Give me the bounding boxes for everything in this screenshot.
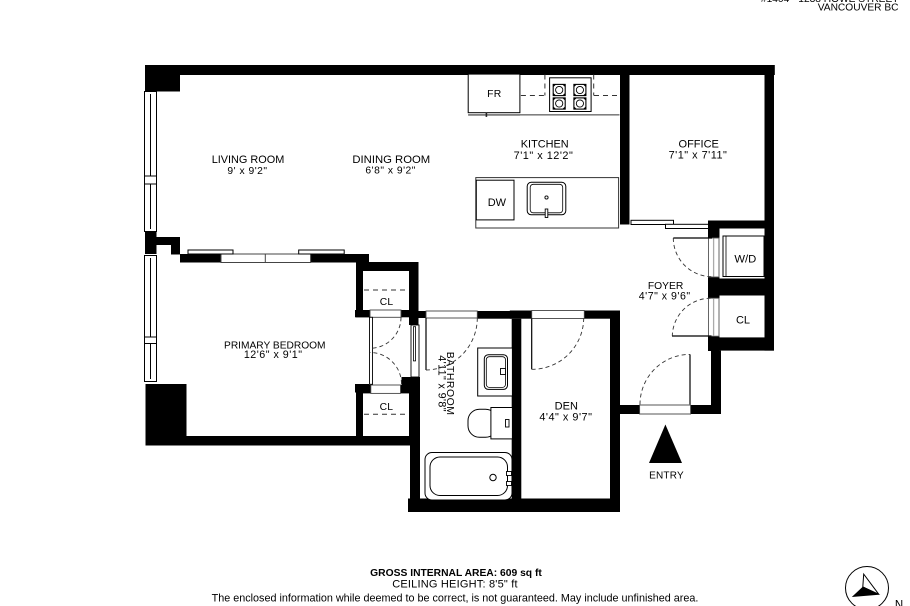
svg-text:9' x 9'2": 9' x 9'2"	[227, 166, 267, 177]
svg-text:7'1" x 7'11": 7'1" x 7'11"	[669, 150, 728, 162]
svg-text:CL: CL	[380, 297, 394, 308]
svg-text:CL: CL	[380, 402, 394, 413]
svg-text:N: N	[895, 600, 903, 606]
svg-text:LIVING ROOM: LIVING ROOM	[212, 154, 285, 166]
svg-text:FR: FR	[487, 89, 502, 100]
svg-text:DW: DW	[488, 197, 507, 209]
svg-text:CL: CL	[736, 314, 750, 326]
svg-text:4'11" x 9'8": 4'11" x 9'8"	[436, 355, 448, 412]
svg-text:DINING ROOM: DINING ROOM	[352, 154, 430, 166]
svg-text:4'7" x 9'6": 4'7" x 9'6"	[639, 290, 691, 302]
svg-text:6'8" x 9'2": 6'8" x 9'2"	[365, 166, 416, 177]
svg-text:KITCHEN: KITCHEN	[521, 139, 569, 151]
svg-text:4'4" x 9'7": 4'4" x 9'7"	[539, 412, 592, 424]
svg-text:12'6" x 9'1": 12'6" x 9'1"	[244, 349, 303, 361]
svg-text:VANCOUVER BC: VANCOUVER BC	[818, 2, 899, 13]
svg-text:The enclosed information while: The enclosed information while deemed to…	[212, 592, 699, 604]
svg-text:7'1" x 12'2": 7'1" x 12'2"	[514, 150, 574, 162]
svg-text:ENTRY: ENTRY	[649, 471, 684, 482]
svg-text:W/D: W/D	[734, 253, 756, 265]
svg-text:CEILING HEIGHT: 8'5" ft: CEILING HEIGHT: 8'5" ft	[392, 578, 518, 590]
